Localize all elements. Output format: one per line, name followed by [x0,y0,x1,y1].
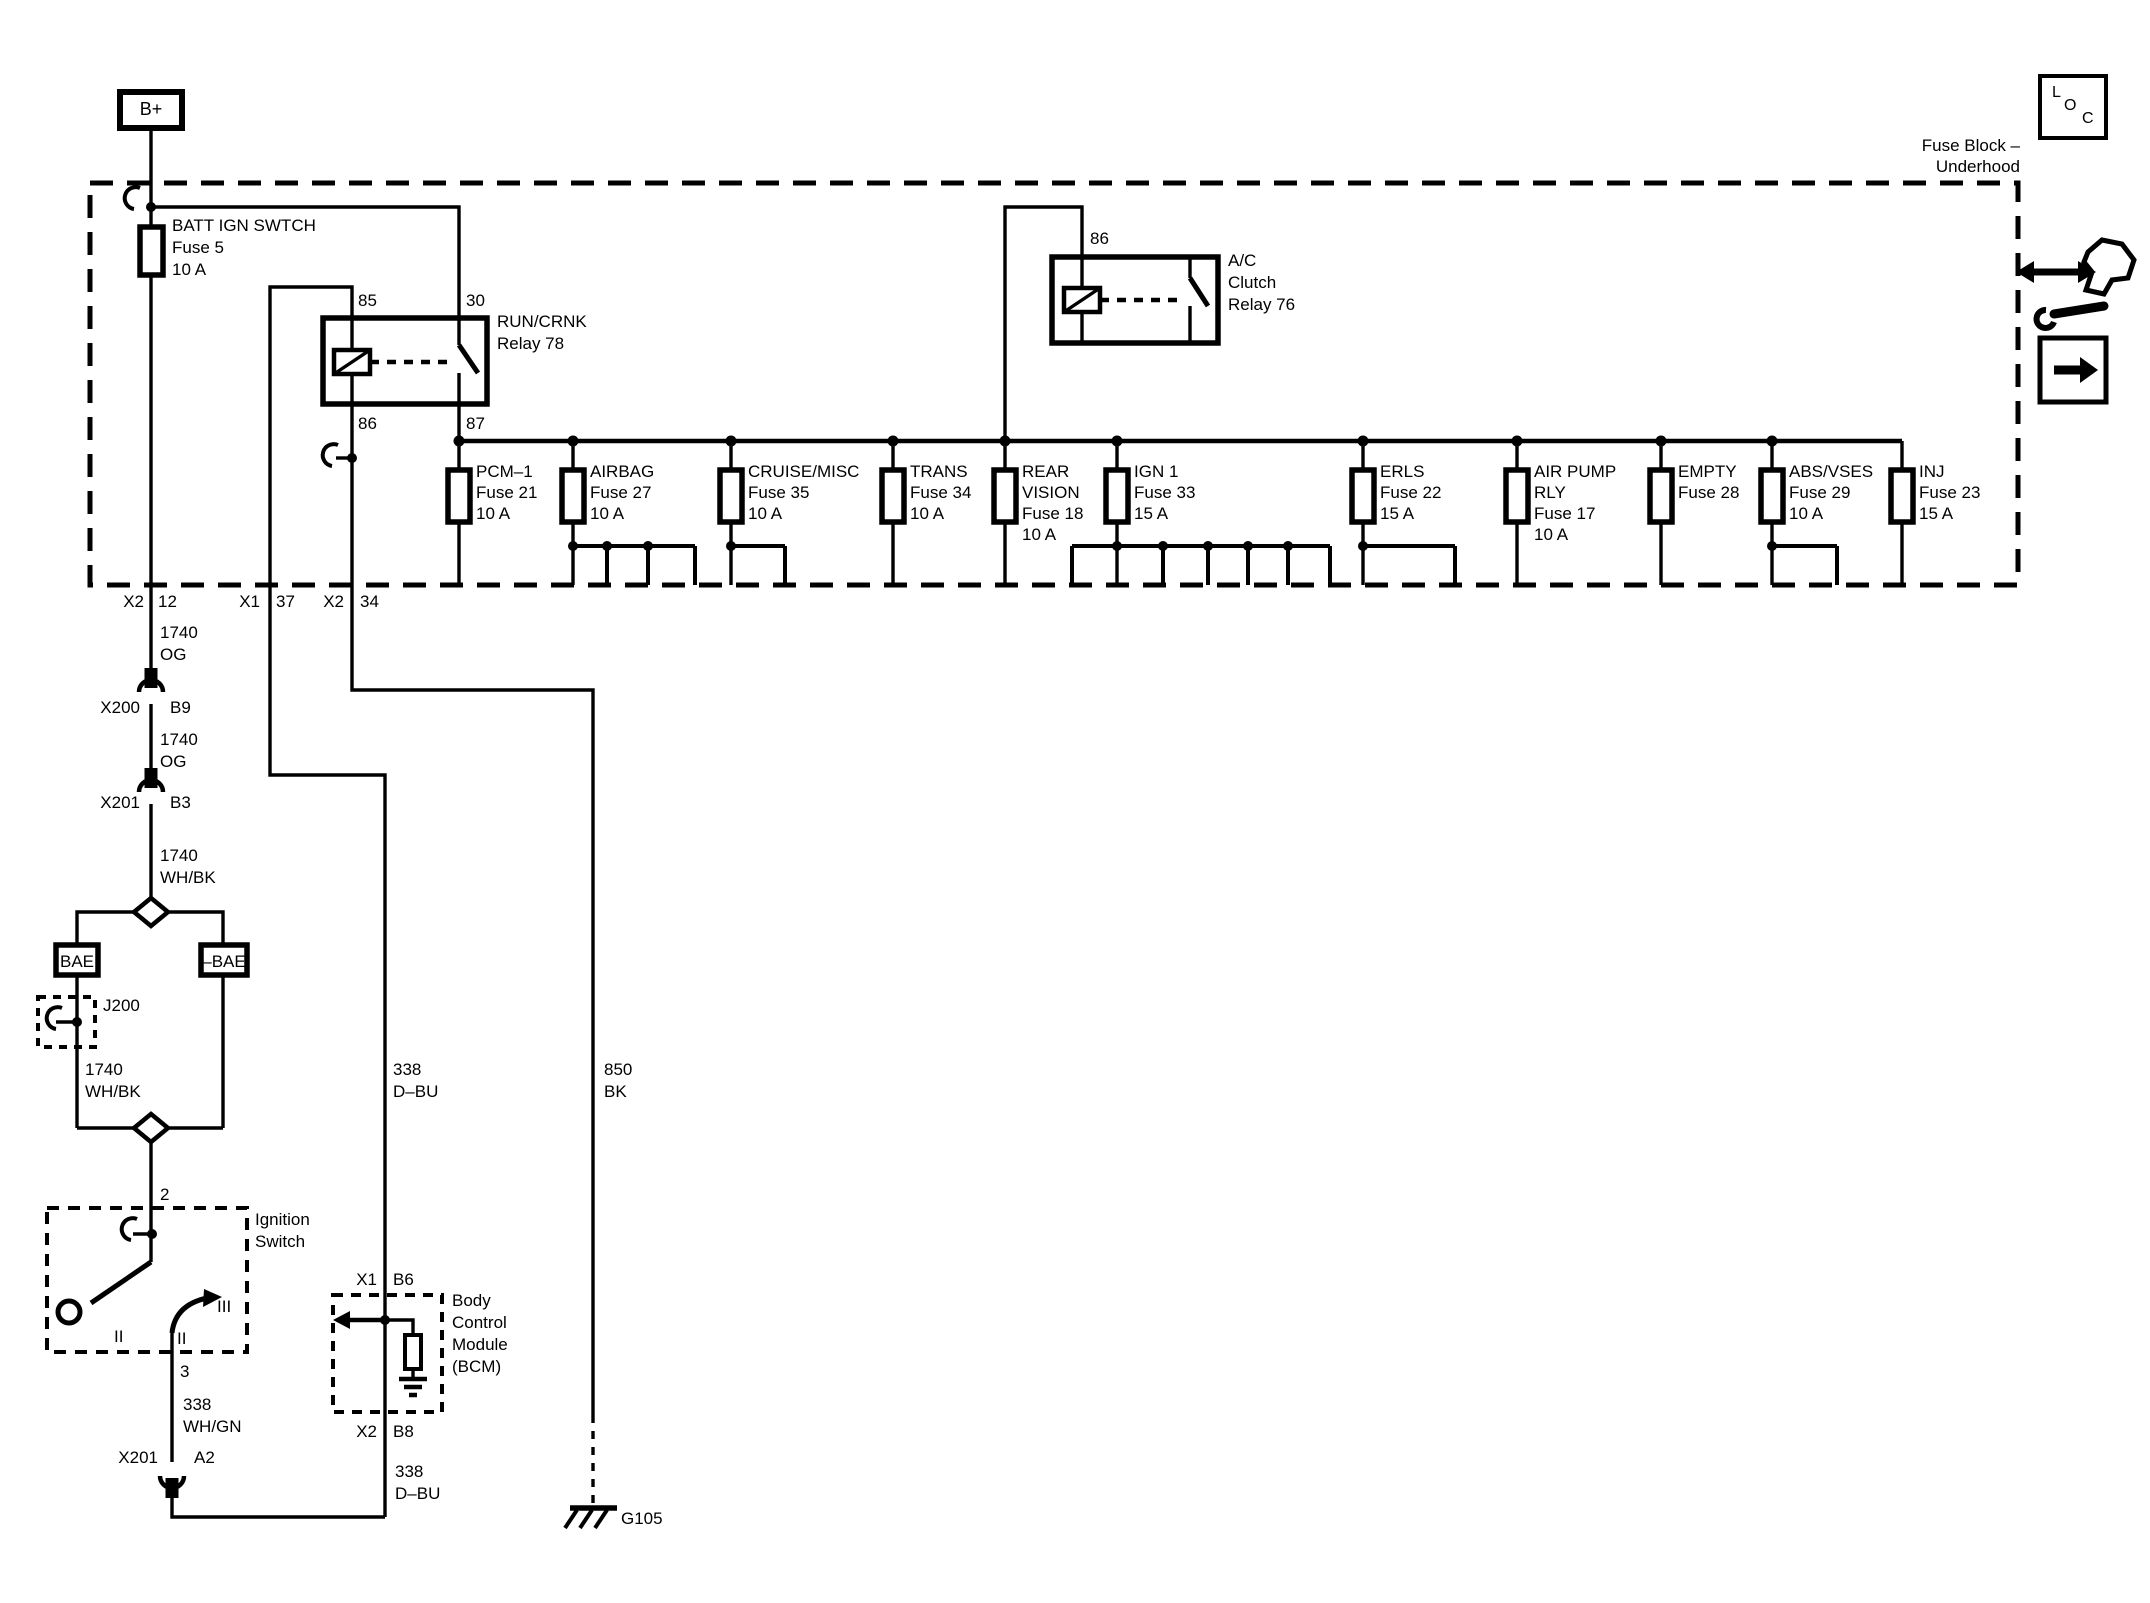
fuse-label: 15 A [1919,504,1953,523]
wire-color: OG [160,645,186,664]
exit-conn: X1 [210,592,260,611]
ignition-pos-crank: III [217,1297,231,1316]
fuse-label: 10 A [748,504,782,523]
wiring-diagram-canvas: B+ Fuse Block – Underhood L O C BATT IGN… [0,0,2150,1603]
fuse-label: Fuse 18 [1022,504,1083,523]
fuse-label: RLY [1534,483,1566,502]
fuse-label: 10 A [1789,504,1823,523]
fuse-label: TRANS [910,462,968,481]
fuse-label: REAR [1022,462,1069,481]
ignition-pos-mid: II [177,1329,186,1348]
fuse-output-subbuses [573,546,1837,585]
fuse5-name: BATT IGN SWTCH [172,216,316,235]
relay78-pin-87: 87 [466,414,485,433]
relay78-name-line2: Relay 78 [497,334,564,353]
bcm-name-line1: Body [452,1291,491,1310]
run-crnk-relay-symbol [323,318,487,441]
fuse-label: ABS/VSES [1789,462,1873,481]
wire-color: D–BU [393,1082,438,1101]
fuse-label: EMPTY [1678,462,1737,481]
ignition-pin-2: 2 [160,1185,169,1204]
fuse-label: AIR PUMP [1534,462,1616,481]
connector-name: X201 [98,1448,158,1467]
relay78-name-line1: RUN/CRNK [497,312,587,331]
exit-pin: 34 [360,592,379,611]
wire-color: WH/BK [85,1082,141,1101]
exit-pin: 37 [276,592,295,611]
relay76-pin-86: 86 [1090,229,1109,248]
fuse-label: 10 A [1534,525,1568,544]
wire-circuit: 850 [604,1060,632,1079]
fuse5-symbol [140,227,163,275]
ignition-pos-left: II [114,1327,123,1346]
fuse-label: IGN 1 [1134,462,1178,481]
fuse-label: Fuse 33 [1134,483,1195,502]
fuse-label: Fuse 28 [1678,483,1739,502]
relay78-pin-86: 86 [358,414,377,433]
fuse-label: 10 A [910,504,944,523]
junction-dots [72,202,1778,1325]
wire-circuit: 1740 [160,730,198,749]
fuse-label: Fuse 23 [1919,483,1980,502]
bcm-name-line3: Module [452,1335,508,1354]
bcm-name-line2: Control [452,1313,507,1332]
ignition-switch-name-line2: Switch [255,1232,305,1251]
fuse-label: ERLS [1380,462,1424,481]
wire-circuit: 1740 [85,1060,123,1079]
relay76-name-line1: A/C [1228,251,1256,270]
exit-pin: 12 [158,592,177,611]
fuse-label: VISION [1022,483,1080,502]
wire-color: OG [160,752,186,771]
ignition-switch-symbol [47,1208,247,1352]
connector-pin: A2 [194,1448,215,1467]
ignition-pin-3: 3 [180,1362,189,1381]
bcm-conn-bottom: X2 [337,1422,377,1441]
fuse-label: AIRBAG [590,462,654,481]
fuse-label: Fuse 17 [1534,504,1595,523]
fuse-label: 15 A [1134,504,1168,523]
fuse-label: Fuse 27 [590,483,651,502]
wire-color: BK [604,1082,627,1101]
exit-conn: X2 [94,592,144,611]
fuse-label: INJ [1919,462,1945,481]
wire-color: D–BU [395,1484,440,1503]
fuse-label: 10 A [1022,525,1056,544]
option-neg-bae-label: –BAE [201,952,247,971]
schematic-nav-icon[interactable] [2016,240,2134,328]
connector-name: X200 [80,698,140,717]
fuse-label: CRUISE/MISC [748,462,859,481]
wire-circuit: 338 [395,1462,423,1481]
option-splice-branches [38,898,247,1142]
fuse-label: Fuse 34 [910,483,971,502]
loc-letter-c: C [2082,110,2094,128]
connector-name: X201 [80,793,140,812]
wire-circuit: 1740 [160,623,198,642]
relay78-pin-30: 30 [466,291,485,310]
relay76-name-line2: Clutch [1228,273,1276,292]
b-plus-label: B+ [120,100,182,119]
exit-conn: X2 [294,592,344,611]
wire-circuit: 338 [183,1395,211,1414]
fuse-block-title-line1: Fuse Block – [1840,136,2020,155]
fuse-label: Fuse 21 [476,483,537,502]
schematic-lines [0,0,2150,1603]
connector-pin: B9 [170,698,191,717]
fuse5-amps: 10 A [172,260,206,279]
wire-runs [151,128,1082,1517]
bcm-conn-top: X1 [337,1270,377,1289]
ground-g105-label: G105 [621,1509,663,1528]
fuse-label: Fuse 35 [748,483,809,502]
bcm-name-line4: (BCM) [452,1357,501,1376]
option-bae-label: BAE [56,952,98,971]
junction-j200-label: J200 [103,996,140,1015]
relay76-name-line3: Relay 76 [1228,295,1295,314]
fuse-label: 15 A [1380,504,1414,523]
ground-g105-symbol [565,1508,617,1528]
loc-letter-l: L [2052,84,2061,102]
ignition-switch-name-line1: Ignition [255,1210,310,1229]
wire-circuit: 1740 [160,846,198,865]
bcm-pin-bottom: B8 [393,1422,414,1441]
connector-pin: B3 [170,793,191,812]
loc-letter-o: O [2064,97,2076,115]
fuse-block-title-line2: Underhood [1840,157,2020,176]
fuse-label: Fuse 22 [1380,483,1441,502]
fuse-label: 10 A [476,504,510,523]
fuse5-id: Fuse 5 [172,238,224,257]
wire-color: WH/GN [183,1417,242,1436]
next-page-arrow-icon[interactable] [2040,338,2106,402]
bcm-symbol [333,1295,442,1412]
fuse-label: PCM–1 [476,462,533,481]
relay78-pin-85: 85 [358,291,377,310]
bcm-pin-top: B6 [393,1270,414,1289]
fuse-label: Fuse 29 [1789,483,1850,502]
fuse-label: 10 A [590,504,624,523]
wire-color: WH/BK [160,868,216,887]
ac-clutch-relay-symbol [1052,257,1218,343]
wire-circuit: 338 [393,1060,421,1079]
